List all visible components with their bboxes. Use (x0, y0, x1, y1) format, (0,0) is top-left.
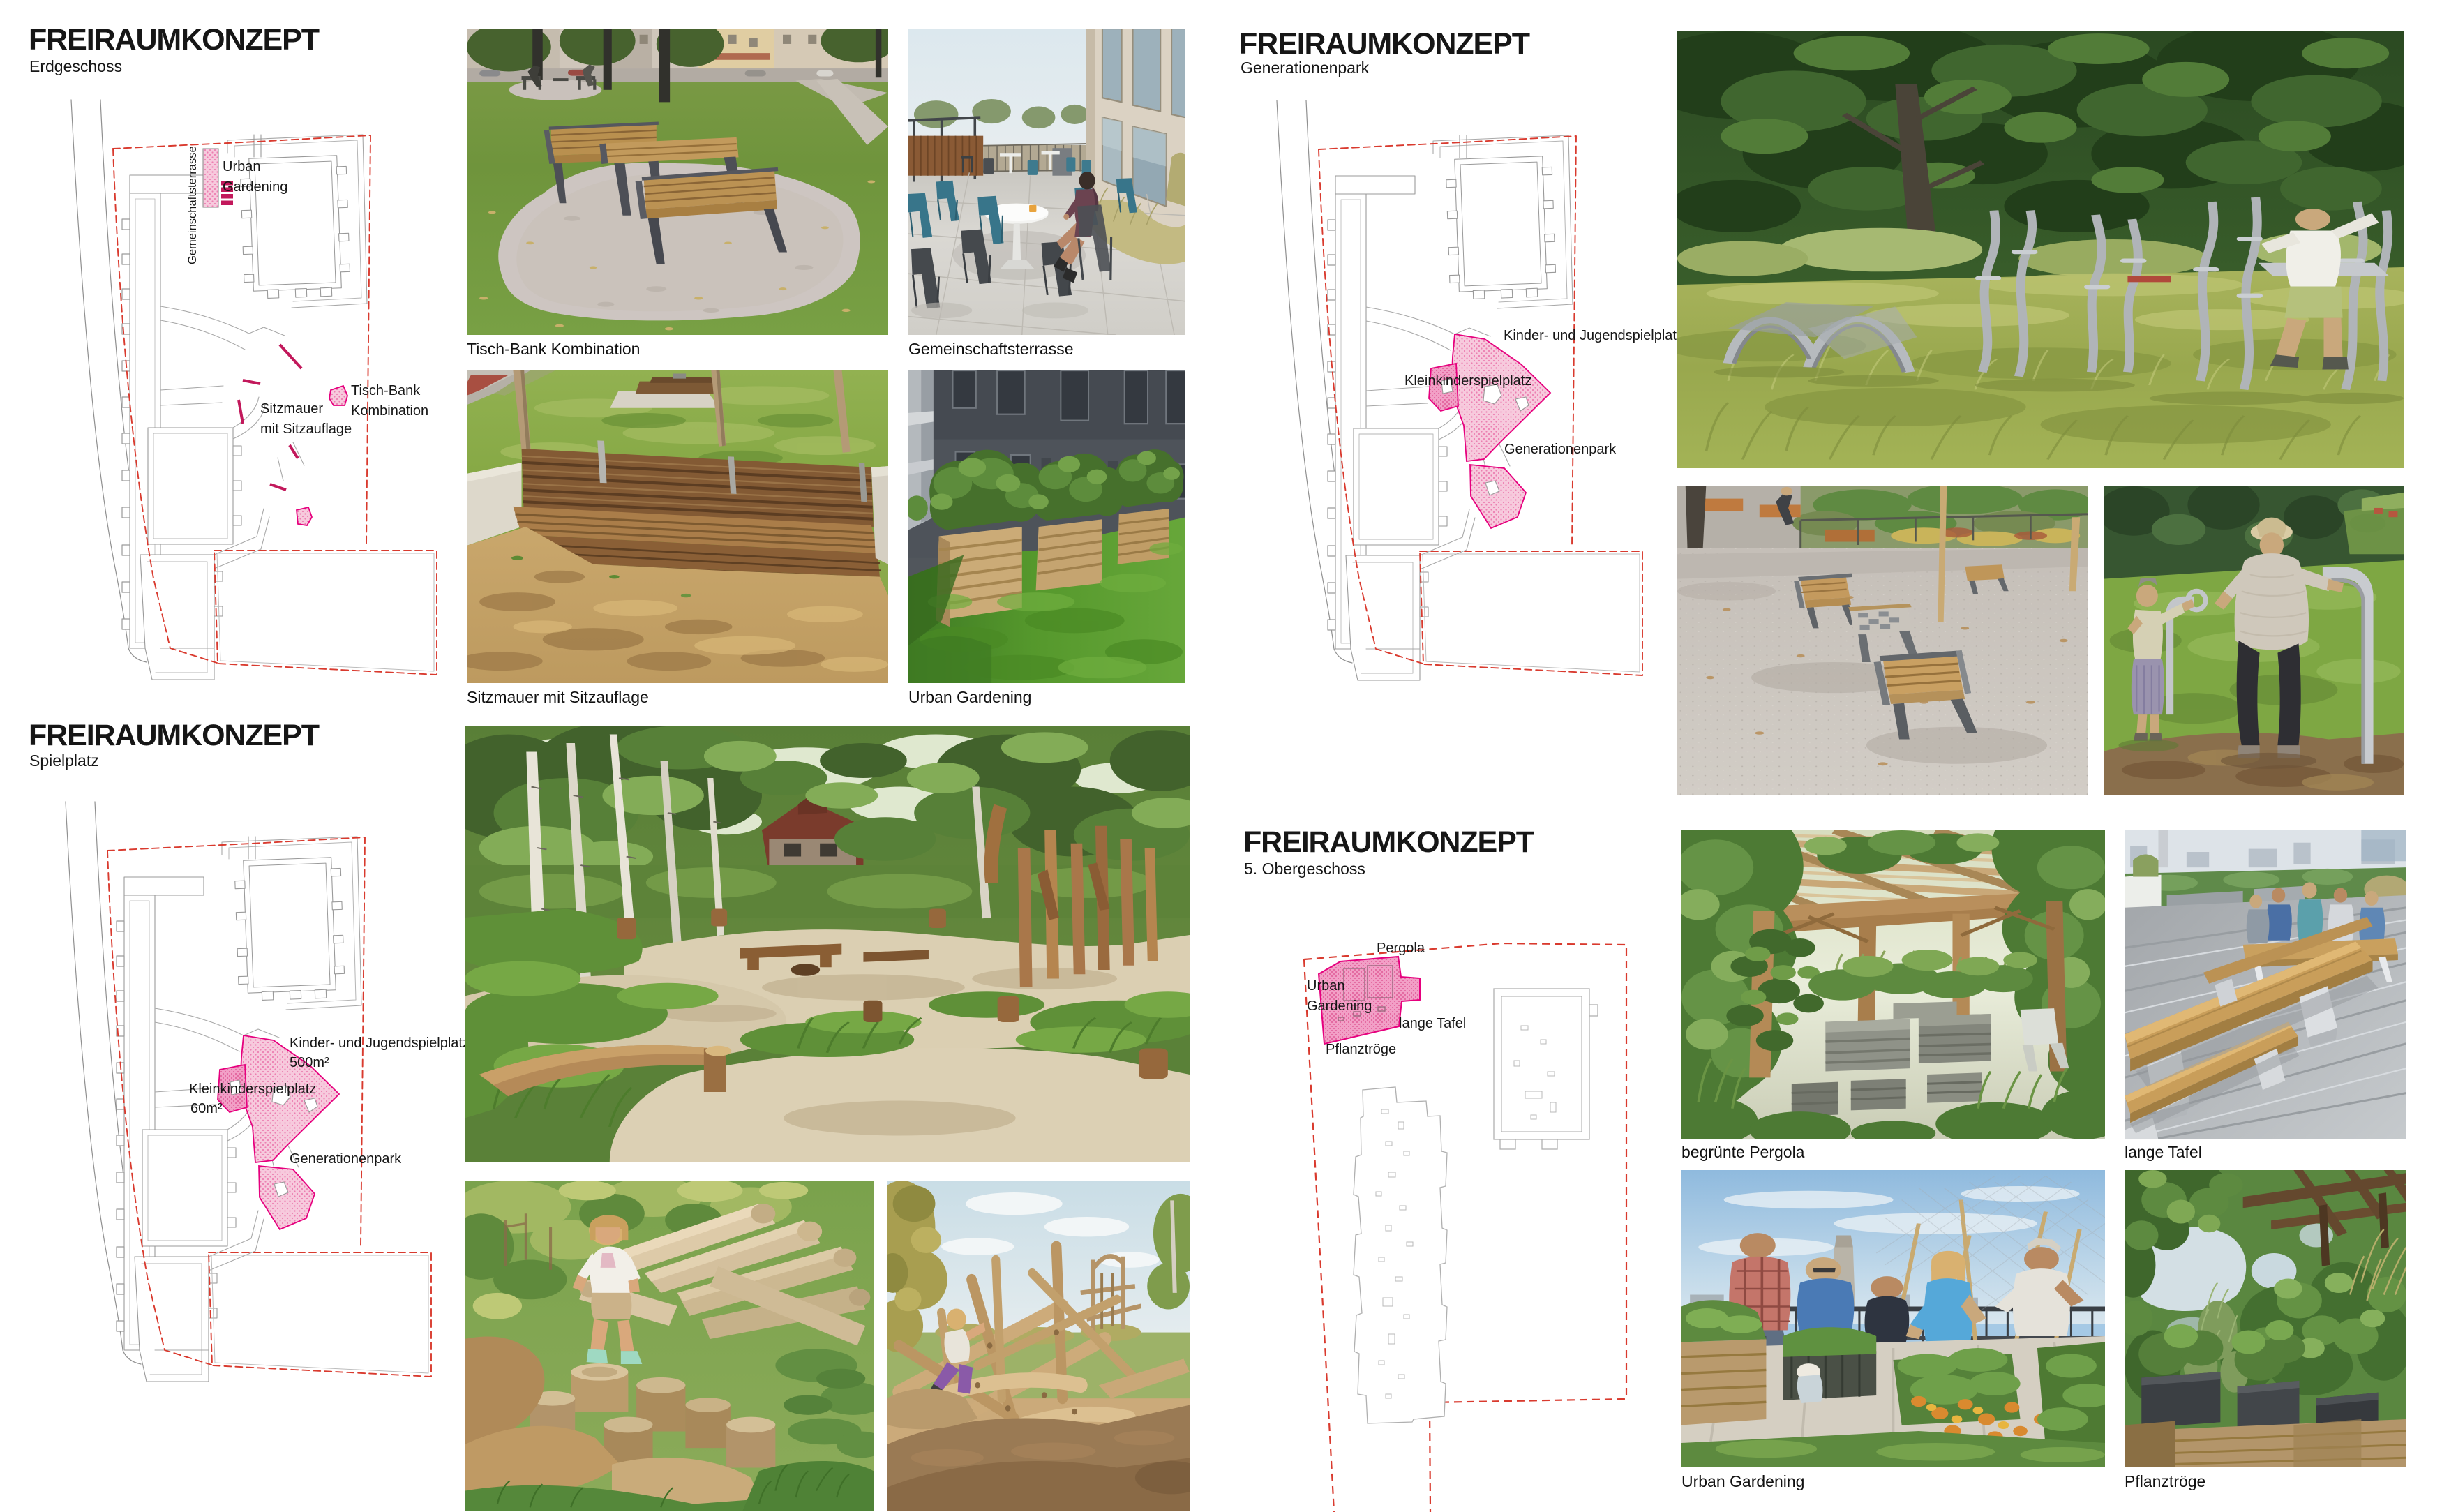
svg-text:60m²: 60m² (190, 1101, 223, 1116)
svg-text:Kleinkinderspielplatz: Kleinkinderspielplatz (189, 1081, 316, 1097)
svg-text:Kinder- und Jugendspielplatz: Kinder- und Jugendspielplatz (1504, 328, 1684, 343)
svg-text:Gemeinschaftsterrasse: Gemeinschaftsterrasse (186, 146, 199, 264)
svg-text:Generationenpark: Generationenpark (1504, 442, 1617, 457)
svg-text:Kleinkinderspielplatz: Kleinkinderspielplatz (1404, 373, 1531, 389)
svg-text:Generationenpark: Generationenpark (290, 1151, 402, 1167)
svg-text:500m²: 500m² (290, 1055, 329, 1070)
svg-text:Gardening: Gardening (223, 179, 287, 195)
svg-text:Urban: Urban (223, 159, 260, 174)
svg-text:Kinder- und Jugendspielplatz: Kinder- und Jugendspielplatz (290, 1035, 470, 1051)
svg-text:Urban: Urban (1307, 978, 1344, 994)
svg-text:Pergola: Pergola (1377, 941, 1425, 956)
svg-text:mit Sitzauflage: mit Sitzauflage (260, 421, 352, 437)
svg-text:Sitzmauer: Sitzmauer (260, 401, 323, 417)
svg-text:lange Tafel: lange Tafel (1399, 1016, 1466, 1031)
svg-text:Gardening: Gardening (1307, 998, 1372, 1014)
svg-text:Pflanztröge: Pflanztröge (1326, 1042, 1396, 1057)
svg-text:Kombination: Kombination (351, 403, 428, 419)
svg-text:Tisch-Bank: Tisch-Bank (351, 383, 421, 398)
